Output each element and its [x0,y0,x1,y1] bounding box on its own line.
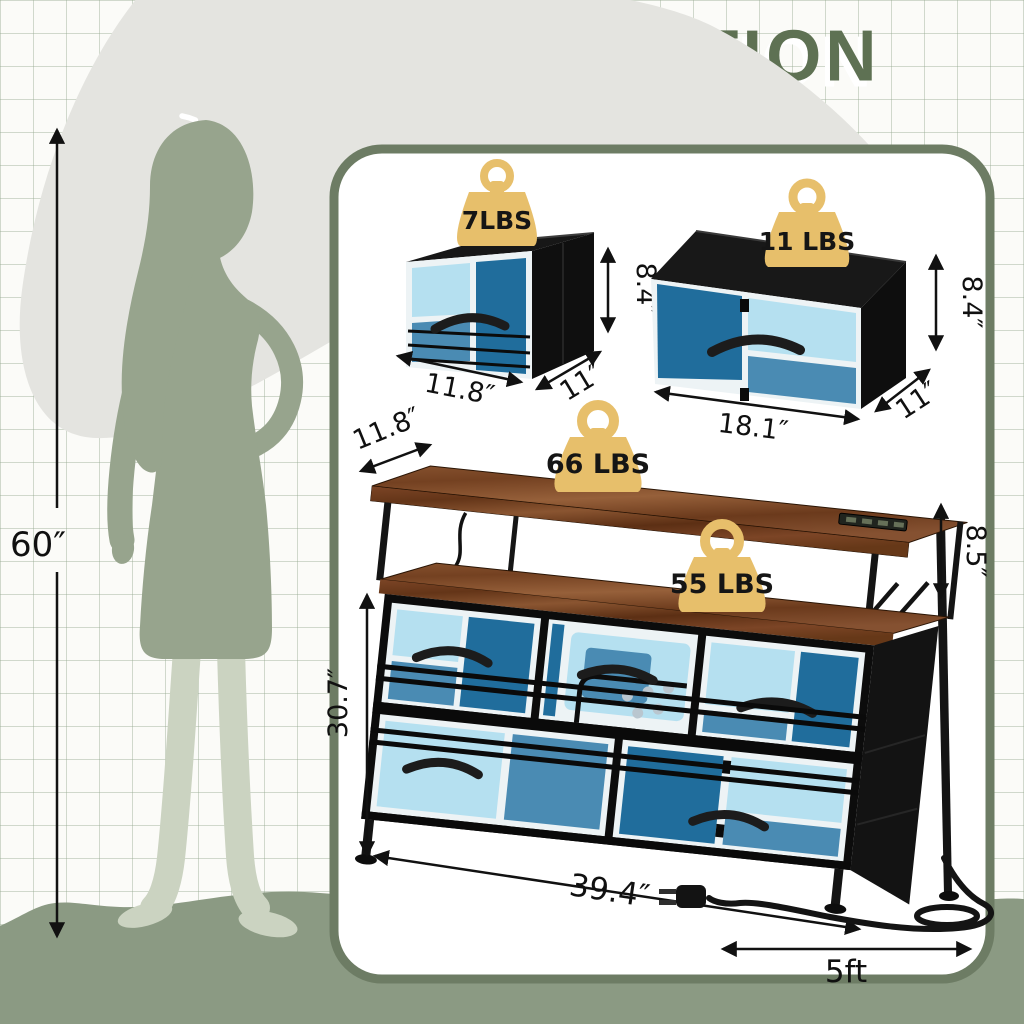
silhouette-leg-left [154,650,187,908]
silhouette-leg-right [231,650,256,908]
small-bin-capacity-label: 7LBS [462,206,532,235]
small-bin-illustration [406,233,594,379]
large-bin-capacity-label: 11 LBS [759,227,855,256]
dresser-shelf-capacity-label: 55 LBS [670,569,774,600]
large-bin-tab [740,299,749,312]
drawer-top-right [696,636,866,752]
dresser-height-label: 30.7″ [323,668,354,738]
person-height-label: 60″ [10,525,66,565]
drawer-top-middle [539,619,699,734]
cord-length-label: 5ft [825,954,867,990]
dresser-top-capacity-label: 66 LBS [546,449,650,480]
size-infographic: 60″ 7LBS 8.4″ 11.8″ 11″ [0,0,1024,1024]
dresser-shelf-clearance-label: 8.5″ [960,524,991,577]
large-bin-height-label: 8.4″ [956,275,987,328]
small-bin-patch-light [412,263,470,317]
large-bin-tab [740,388,749,401]
drawer-top-left [381,603,541,718]
large-bin-patch-deep [657,284,742,380]
dresser-rear-foot [939,891,959,901]
